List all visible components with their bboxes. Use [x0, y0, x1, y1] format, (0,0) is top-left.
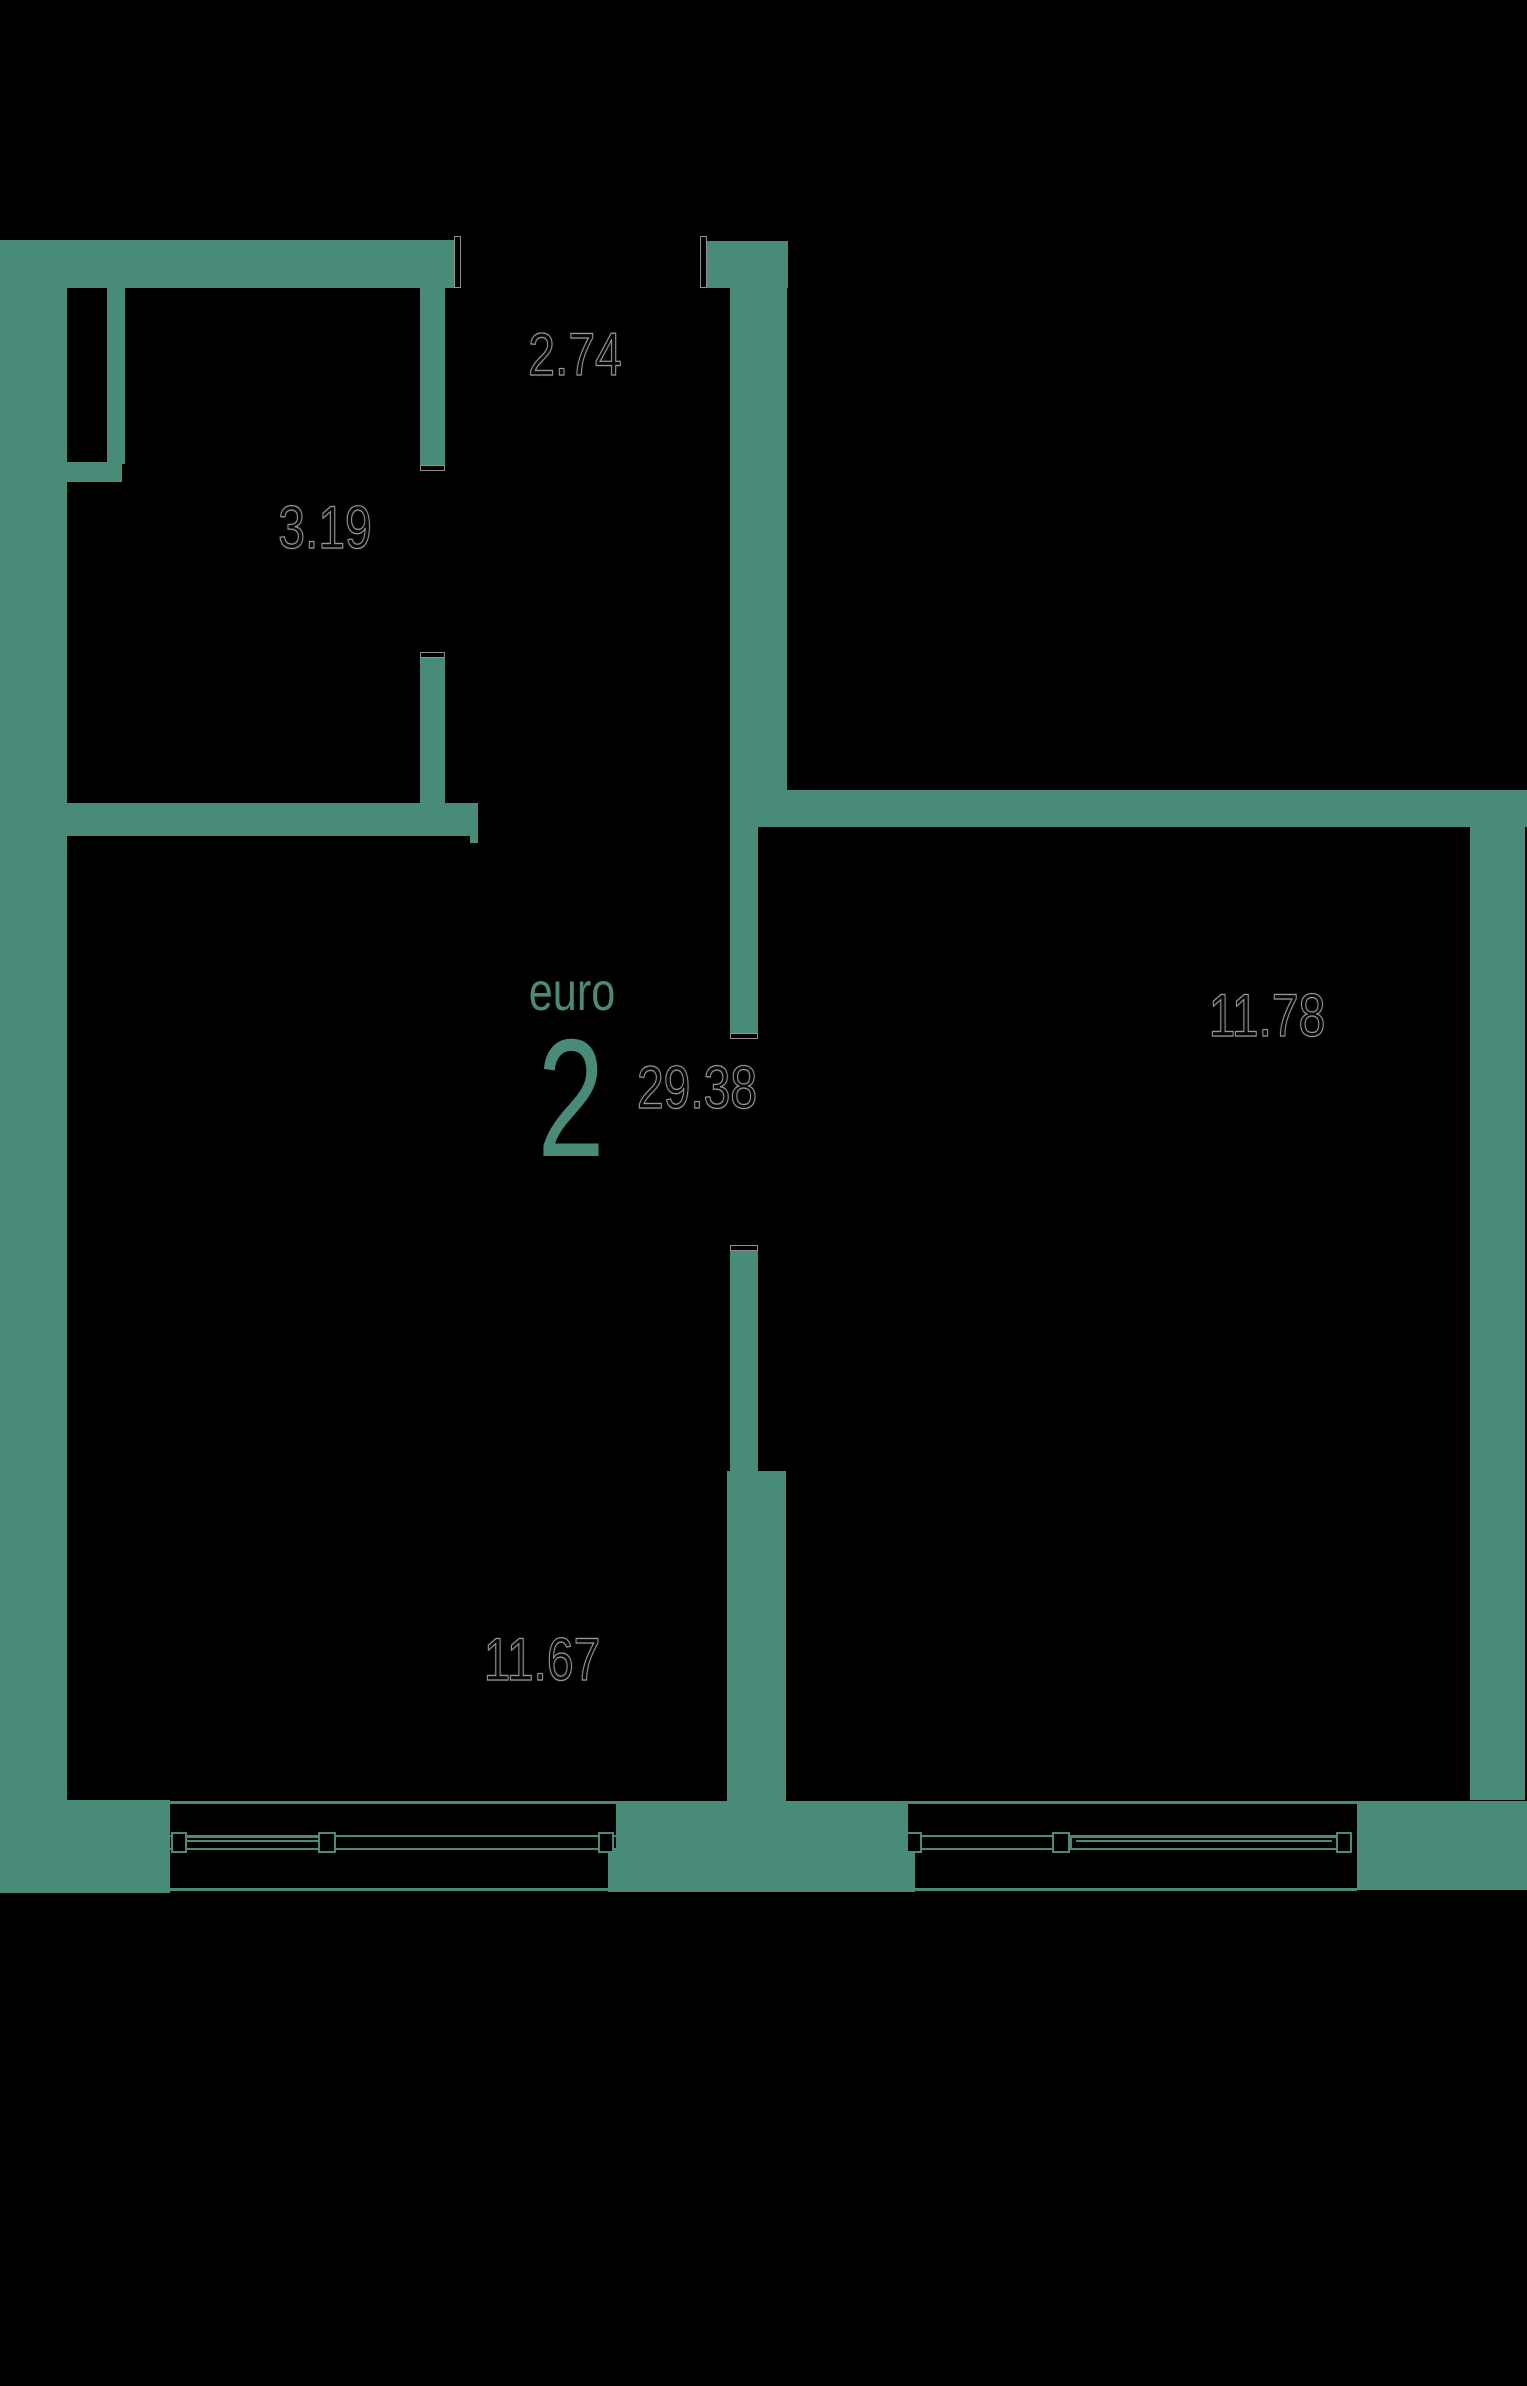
window-casement-inner-line — [1076, 1840, 1332, 1842]
hall-door-jamb-top — [420, 465, 445, 471]
sill-line-right — [908, 1801, 1357, 1804]
window-jamb-left — [906, 1832, 922, 1853]
sill-line-left — [170, 1801, 616, 1804]
middle-wall-right — [730, 790, 1527, 827]
middle-wall-left — [0, 803, 478, 836]
room-area-hallway-label: 2.74 — [528, 325, 621, 385]
floor-plan: 2.74 3.19 11.78 11.67 euro 2 29.38 — [0, 0, 1527, 2386]
bottom-corner-right — [1357, 1801, 1527, 1890]
entry-door-jamb-left — [454, 236, 461, 288]
central-wall-lower — [730, 1251, 758, 1471]
wall-top-left — [0, 240, 455, 288]
room-area-living-label: 11.67 — [484, 1630, 601, 1690]
central-wall-pier — [727, 1471, 786, 1801]
window-pier-lower — [608, 1850, 915, 1892]
facade-line-bottom — [170, 1888, 1357, 1891]
hall-wall-upper — [420, 287, 445, 467]
entry-door-jamb-right — [700, 236, 707, 288]
central-wall-mid — [730, 827, 758, 1036]
middle-wall-nub — [470, 836, 478, 843]
rooms-count-label: 2 — [537, 1014, 604, 1182]
total-area-label: 29.38 — [637, 1058, 757, 1118]
central-wall-upper — [730, 287, 787, 793]
window-jamb-right — [1336, 1832, 1352, 1853]
outer-wall-right — [1470, 825, 1525, 1800]
window-jamb-right — [598, 1832, 614, 1853]
bedroom-door-jamb-top — [730, 1033, 758, 1039]
bottom-corner-left — [0, 1800, 170, 1893]
room-area-bedroom-label: 11.78 — [1209, 986, 1326, 1046]
window-casement — [176, 1836, 334, 1850]
hall-wall-lower — [420, 658, 445, 804]
niche-wall — [107, 288, 125, 464]
window-jamb-mid — [1052, 1832, 1070, 1853]
window-casement — [1070, 1836, 1338, 1850]
window-pier-upper — [616, 1801, 908, 1850]
window-jamb-left — [171, 1832, 187, 1853]
window-jamb-mid — [318, 1832, 336, 1853]
window-casement-inner-line — [182, 1840, 328, 1842]
niche-bottom-wall — [0, 462, 122, 482]
wall-top-right — [707, 241, 788, 288]
room-area-storage-label: 3.19 — [278, 498, 371, 558]
